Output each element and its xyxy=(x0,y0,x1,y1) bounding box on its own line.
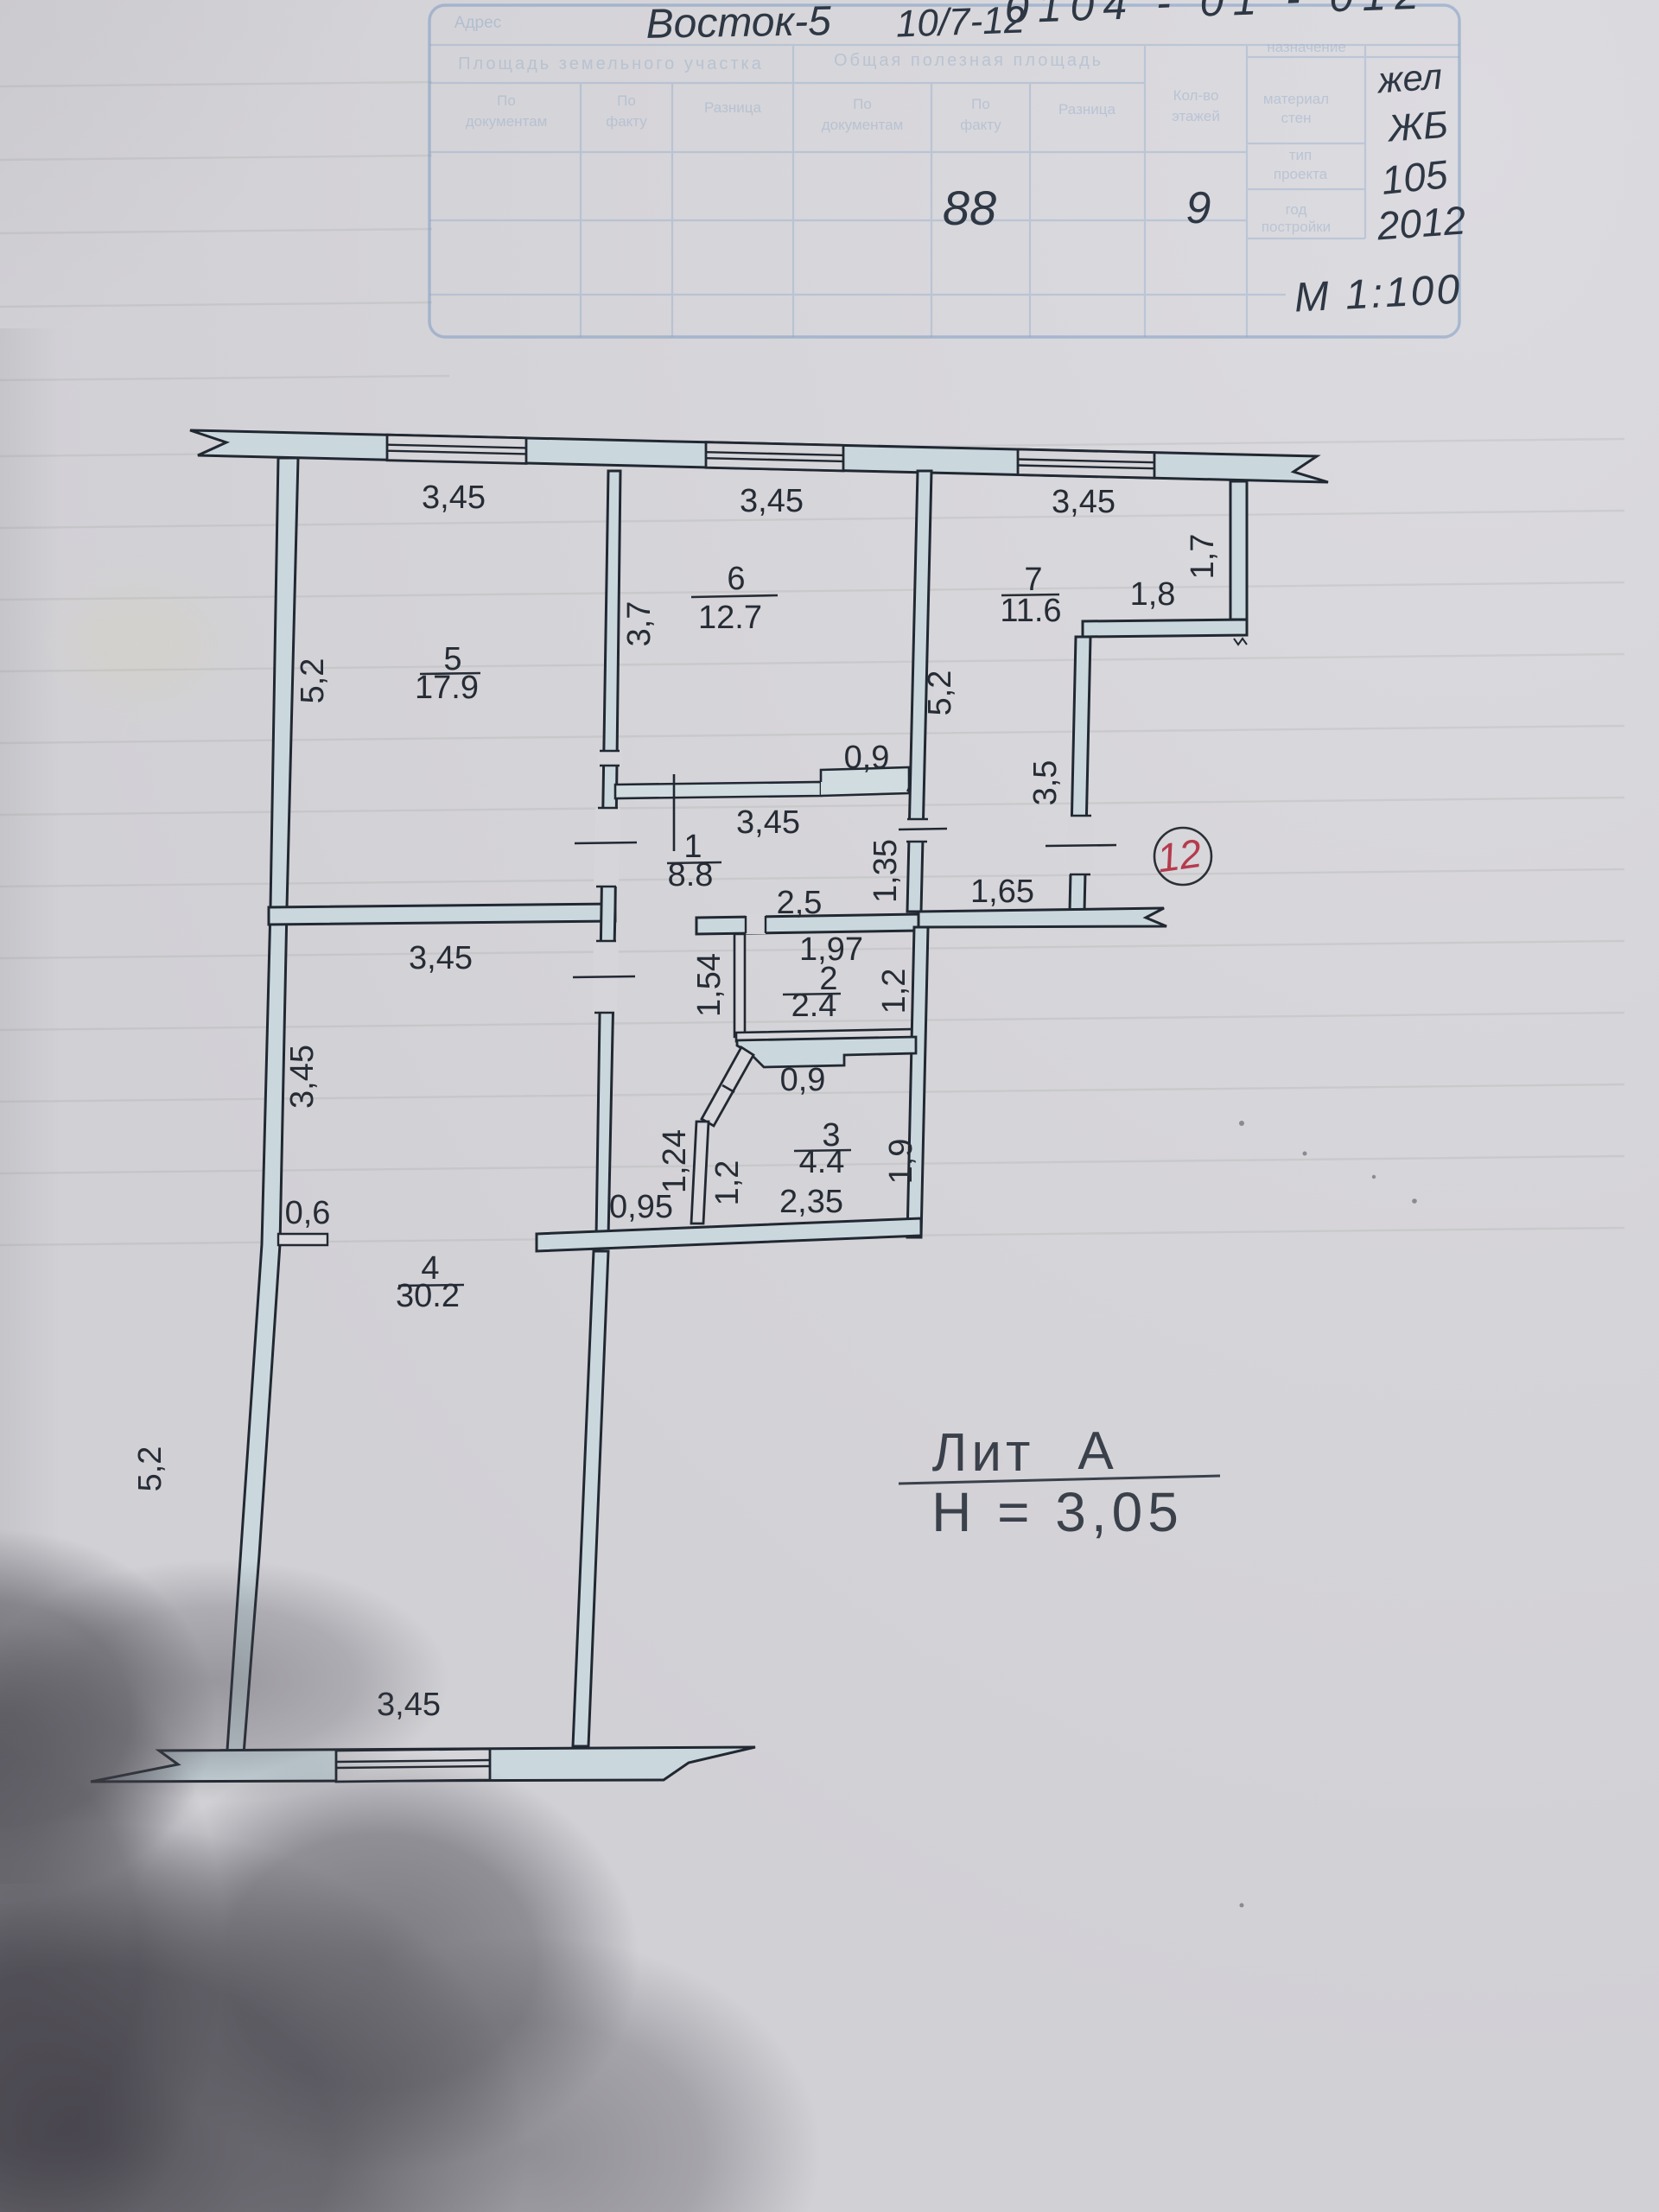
svg-text:1,54: 1,54 xyxy=(691,953,728,1017)
svg-text:0,6: 0,6 xyxy=(285,1195,331,1231)
svg-text:2,5: 2,5 xyxy=(777,885,823,921)
svg-text:постройки: постройки xyxy=(1262,219,1331,235)
svg-text:год: год xyxy=(1286,201,1307,218)
svg-text:По: По xyxy=(617,92,636,109)
svg-text:1,35: 1,35 xyxy=(868,839,904,903)
svg-text:проекта: проекта xyxy=(1274,166,1328,182)
svg-text:17.9: 17.9 xyxy=(415,670,479,706)
svg-text:документам: документам xyxy=(466,113,548,130)
svg-text:1,9: 1,9 xyxy=(883,1139,919,1185)
svg-text:88: 88 xyxy=(943,181,996,235)
svg-text:факту: факту xyxy=(606,113,647,130)
svg-text:Лит: Лит xyxy=(932,1423,1035,1483)
svg-text:3,45: 3,45 xyxy=(284,1045,321,1109)
svg-text:Н = 3,05: Н = 3,05 xyxy=(931,1481,1184,1543)
svg-text:М 1:100: М 1:100 xyxy=(1293,267,1463,321)
svg-text:30.2: 30.2 xyxy=(396,1278,460,1314)
svg-text:2,35: 2,35 xyxy=(779,1184,843,1220)
svg-text:1,65: 1,65 xyxy=(970,874,1034,910)
svg-text:ЖБ: ЖБ xyxy=(1385,104,1449,150)
svg-text:Разница: Разница xyxy=(704,99,761,116)
svg-text:1,2: 1,2 xyxy=(876,969,912,1014)
svg-text:1,2: 1,2 xyxy=(709,1160,746,1206)
svg-text:Разница: Разница xyxy=(1058,101,1116,118)
svg-text:стен: стен xyxy=(1281,110,1312,126)
svg-text:1,8: 1,8 xyxy=(1130,576,1176,613)
svg-text:3,7: 3,7 xyxy=(621,601,658,647)
svg-text:1,24: 1,24 xyxy=(657,1129,693,1193)
svg-text:материал: материал xyxy=(1263,91,1329,107)
svg-text:По: По xyxy=(853,96,872,112)
svg-text:факту: факту xyxy=(960,117,1001,133)
svg-text:0,9: 0,9 xyxy=(844,740,890,776)
svg-text:назначение: назначение xyxy=(1267,39,1346,55)
svg-text:Общая полезная площадь: Общая полезная площадь xyxy=(834,51,1103,70)
svg-text:документам: документам xyxy=(822,117,904,133)
svg-text:Восток-5: Восток-5 xyxy=(645,0,831,48)
svg-text:12: 12 xyxy=(1154,830,1205,881)
svg-text:5,2: 5,2 xyxy=(295,658,331,704)
svg-text:Кол-во: Кол-во xyxy=(1173,87,1219,104)
svg-text:11.6: 11.6 xyxy=(1000,593,1061,629)
svg-text:А: А xyxy=(1077,1421,1114,1481)
svg-text:3,5: 3,5 xyxy=(1027,760,1064,806)
svg-text:5,2: 5,2 xyxy=(922,671,958,716)
svg-text:3,45: 3,45 xyxy=(736,804,800,841)
svg-text:Адрес: Адрес xyxy=(454,14,501,32)
svg-text:По: По xyxy=(497,92,516,109)
svg-text:1,7: 1,7 xyxy=(1185,534,1221,580)
svg-text:По: По xyxy=(971,96,990,112)
svg-text:9: 9 xyxy=(1186,183,1211,233)
svg-text:5,2: 5,2 xyxy=(132,1446,168,1492)
svg-text:этажей: этажей xyxy=(1172,108,1220,124)
svg-text:тип: тип xyxy=(1289,147,1313,163)
svg-text:жел: жел xyxy=(1375,55,1444,100)
svg-text:0,9: 0,9 xyxy=(780,1062,826,1098)
svg-text:12.7: 12.7 xyxy=(698,600,762,636)
svg-text:3,45: 3,45 xyxy=(1052,484,1116,520)
svg-text:6: 6 xyxy=(727,561,745,597)
svg-text:Площадь земельного участка: Площадь земельного участка xyxy=(458,54,764,73)
svg-text:3,45: 3,45 xyxy=(422,480,486,516)
svg-text:105: 105 xyxy=(1379,151,1450,203)
svg-text:2012: 2012 xyxy=(1375,197,1467,248)
svg-text:3,45: 3,45 xyxy=(740,483,804,519)
svg-text:3,45: 3,45 xyxy=(409,940,473,976)
svg-text:0,95: 0,95 xyxy=(609,1189,673,1225)
